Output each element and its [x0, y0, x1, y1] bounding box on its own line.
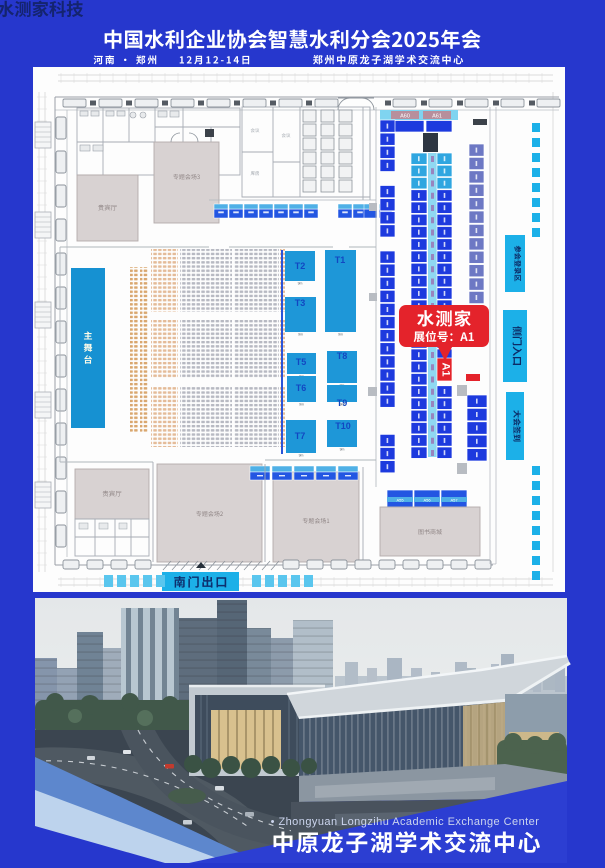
svg-text:9m: 9m [299, 402, 304, 406]
svg-text:T10: T10 [335, 421, 351, 431]
svg-text:T1: T1 [335, 255, 346, 265]
svg-text:A56: A56 [423, 498, 431, 503]
svg-text:9m: 9m [298, 332, 303, 336]
svg-text:9m: 9m [340, 402, 345, 406]
svg-text:A57: A57 [450, 498, 458, 503]
svg-text:• Zhongyuan Longzihu Academic: • Zhongyuan Longzihu Academic Exchange C… [271, 816, 540, 828]
svg-text:T8: T8 [337, 351, 348, 361]
svg-text:T7: T7 [295, 431, 306, 441]
svg-text:A61: A61 [432, 114, 442, 120]
svg-text:9m: 9m [298, 281, 303, 285]
svg-text:T6: T6 [296, 383, 307, 393]
svg-text:A60: A60 [400, 114, 410, 120]
svg-text:9m: 9m [340, 447, 345, 451]
svg-text:9m: 9m [338, 332, 343, 336]
svg-text:T5: T5 [296, 357, 307, 367]
svg-text:A1: A1 [440, 362, 452, 376]
svg-text:9m: 9m [299, 453, 304, 457]
svg-text:T3: T3 [295, 298, 306, 308]
svg-text:T2: T2 [295, 261, 306, 271]
svg-text:A55: A55 [396, 498, 404, 503]
